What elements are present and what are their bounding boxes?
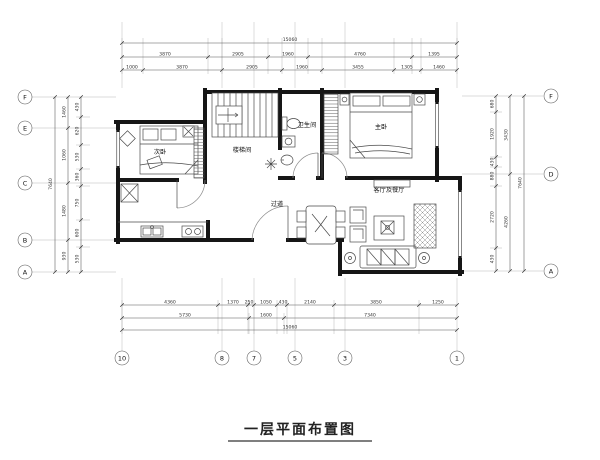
grid-bubbles-bottom: 10 8 7 5 3 1 (115, 351, 464, 365)
dim-label: 1460 (433, 65, 445, 71)
grid-bubble-label: 10 (118, 355, 126, 363)
dim-label: 430 (279, 300, 288, 306)
kitchen-counter (118, 222, 208, 237)
dim-label: 1000 (126, 65, 138, 71)
wardrobe-master (324, 94, 338, 154)
side-table-lamp (419, 253, 430, 264)
dim-label: 430 (490, 255, 496, 264)
kitchen-shaft (121, 184, 138, 202)
grid-bubble-label: A (23, 269, 28, 277)
window-left (117, 130, 120, 168)
dim-label: 750 (75, 199, 81, 208)
grid-bubble-label: C (23, 180, 28, 188)
dim-label: 2905 (246, 65, 258, 71)
dim-label: 1395 (428, 52, 440, 58)
dim-label: 880 (490, 172, 496, 181)
dim-label: 430 (75, 103, 81, 112)
window-right-living (459, 190, 462, 258)
armchair (350, 207, 366, 223)
dim-label: 3870 (159, 52, 171, 58)
grid-bubble-label: 1 (455, 355, 459, 363)
dim-label: 4360 (164, 300, 176, 306)
door-bathroom (293, 153, 318, 178)
dim-label: 15060 (283, 325, 298, 331)
dim-label: 1920 (490, 128, 496, 140)
grid-bubble-label: 5 (293, 355, 297, 363)
dim-label: 5730 (179, 313, 191, 319)
dim-label: 1960 (282, 52, 294, 58)
stove (182, 226, 203, 237)
dim-label: 620 (75, 127, 81, 136)
dim-label: 360 (75, 173, 81, 182)
dim-label: 1960 (296, 65, 308, 71)
washing-machine (282, 136, 295, 147)
dim-label: 680 (490, 100, 496, 109)
dim-label: 1050 (260, 300, 272, 306)
dim-label: 600 (75, 229, 81, 238)
dim-label: 7340 (364, 313, 376, 319)
nightstand-right (414, 94, 425, 105)
room-label-living-dining: 客厅及餐厅 (374, 186, 405, 194)
dim-label: 1600 (260, 313, 272, 319)
floorplan-drawing: 15060 3870 2905 1960 4760 1395 1000 3870… (0, 0, 600, 460)
tv-cabinet (374, 180, 410, 187)
grid-bubbles-right: F D A (544, 89, 558, 278)
dim-label: 1060 (62, 149, 68, 161)
plant-icon (265, 158, 277, 170)
room-label-stairwell: 楼梯间 (233, 146, 252, 154)
dim-label: 530 (75, 153, 81, 162)
dim-label: 530 (75, 255, 81, 264)
dining-table (297, 206, 345, 244)
floorplan-sheet: 15060 3870 2905 1960 4760 1395 1000 3870… (0, 0, 600, 460)
dim-label: 7640 (48, 178, 54, 190)
room-label-master-bedroom: 主卧 (375, 123, 387, 131)
dim-label: 4260 (504, 216, 510, 228)
grid-bubble-label: 8 (220, 355, 224, 363)
tv-unit (414, 204, 436, 248)
grid-bubble-label: 3 (343, 355, 347, 363)
grid-bubble-label: 7 (252, 355, 256, 363)
dim-label: 4760 (354, 52, 366, 58)
armchair (350, 226, 366, 242)
side-table-lamp (345, 253, 356, 264)
grid-bubble-label: B (23, 237, 27, 245)
sofa (360, 246, 416, 268)
nightstand-left (340, 94, 349, 105)
coffee-table (374, 216, 404, 240)
door-master-bedroom (322, 153, 347, 178)
dim-label: 3430 (504, 129, 510, 141)
dim-label: 930 (62, 252, 68, 261)
grid-bubble-label: F (23, 94, 27, 102)
extension-lines (32, 38, 543, 334)
room-label-bathroom: 卫生间 (298, 121, 317, 129)
grid-bubbles-left: F E C B A (18, 90, 32, 279)
room-label-corridor: 过道 (271, 200, 283, 208)
dim-label: 2905 (232, 52, 244, 58)
kitchen-sink (141, 226, 163, 237)
dim-label: 1480 (62, 205, 68, 217)
dim-label: 1250 (432, 300, 444, 306)
bathroom-sink (281, 155, 293, 165)
dim-label: 430 (490, 158, 496, 167)
dim-label: 15060 (283, 37, 298, 43)
dim-label: 2720 (490, 211, 496, 223)
dim-label: 2140 (304, 300, 316, 306)
door-entry (252, 206, 288, 240)
dim-label: 1460 (62, 106, 68, 118)
dim-label: 3455 (352, 65, 364, 71)
sheet-title: 一层平面布置图 (244, 421, 356, 438)
dim-label: 7640 (518, 177, 524, 189)
window-right-upper (436, 102, 439, 148)
dim-label: 250 (245, 300, 254, 306)
dim-label: 3850 (370, 300, 382, 306)
dim-label: 1305 (401, 65, 413, 71)
grid-bubble-label: A (549, 268, 554, 276)
staircase (212, 93, 278, 137)
wardrobe-secondary (194, 128, 204, 178)
dim-label: 1370 (227, 300, 239, 306)
dim-label: 3870 (176, 65, 188, 71)
room-label-secondary-bedroom: 次卧 (154, 148, 166, 156)
grid-bubble-label: D (548, 171, 553, 179)
grid-bubble-label: F (549, 93, 553, 101)
door-secondary-bedroom (177, 180, 205, 208)
decor-pillow (120, 131, 136, 147)
ac-unit-icon (183, 126, 194, 137)
grid-bubble-label: E (23, 125, 27, 133)
